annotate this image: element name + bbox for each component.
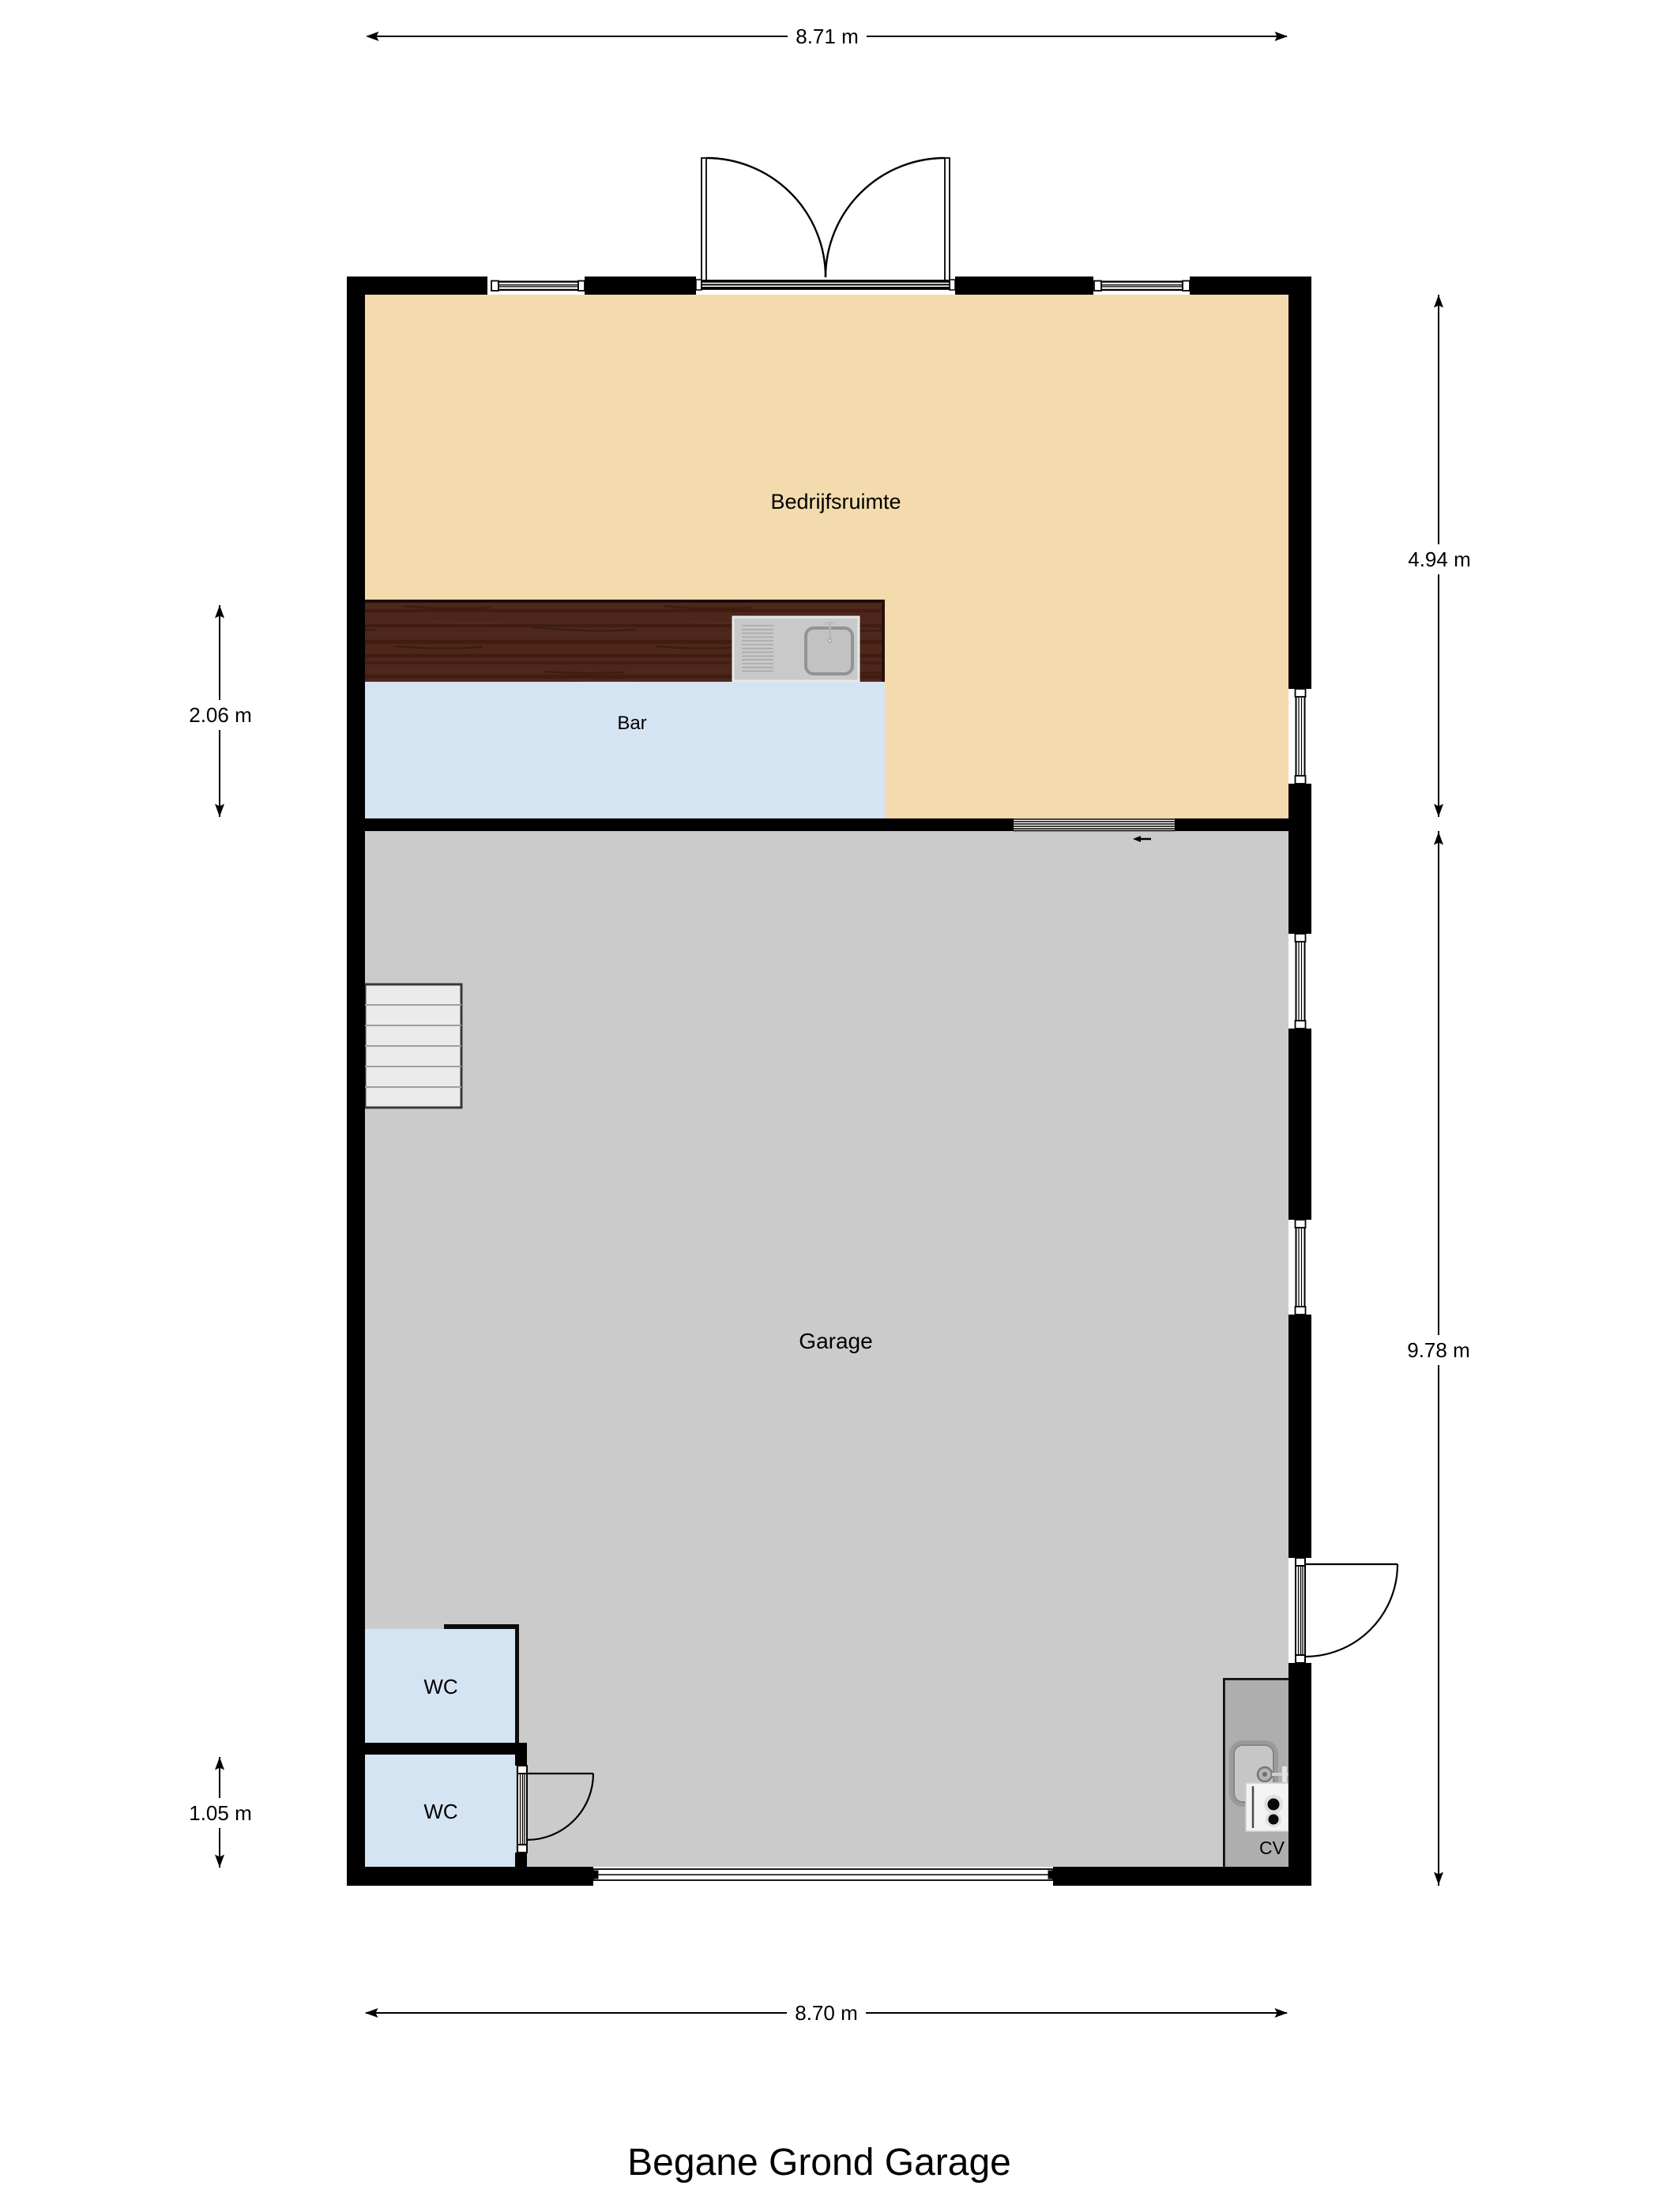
svg-text:9.78 m: 9.78 m [1407, 1338, 1470, 1362]
svg-text:WC: WC [423, 1800, 457, 1823]
svg-text:1.05 m: 1.05 m [189, 1801, 252, 1825]
svg-text:Bedrijfsruimte: Bedrijfsruimte [770, 490, 901, 513]
svg-text:CV: CV [1259, 1838, 1285, 1858]
svg-text:Begane Grond Garage: Begane Grond Garage [627, 2142, 1011, 2184]
svg-text:8.70 m: 8.70 m [795, 2001, 858, 2025]
svg-text:8.71 m: 8.71 m [796, 24, 859, 48]
svg-text:2.06 m: 2.06 m [189, 703, 252, 727]
svg-text:Garage: Garage [799, 1329, 872, 1353]
svg-text:4.94 m: 4.94 m [1408, 547, 1471, 571]
svg-text:Bar: Bar [617, 713, 646, 734]
svg-text:WC: WC [423, 1675, 457, 1698]
